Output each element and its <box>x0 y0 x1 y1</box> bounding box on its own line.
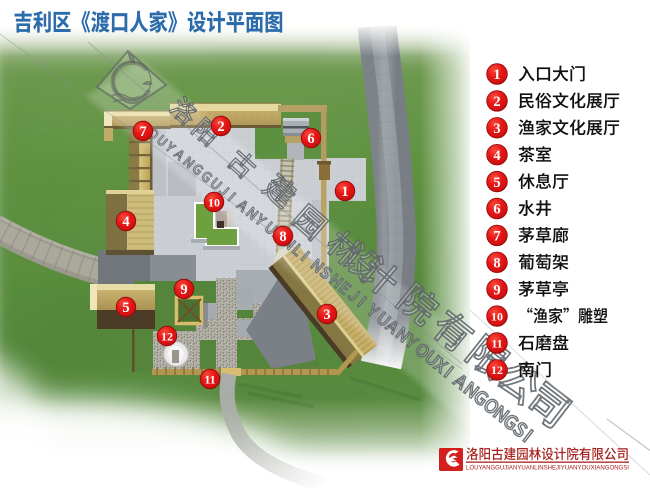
svg-text:2: 2 <box>217 119 224 135</box>
svg-text:7: 7 <box>493 229 500 245</box>
svg-text:5: 5 <box>122 300 129 316</box>
svg-text:10: 10 <box>491 309 503 323</box>
svg-text:3: 3 <box>493 121 500 137</box>
svg-text:7: 7 <box>139 124 146 140</box>
svg-text:1: 1 <box>341 184 348 200</box>
svg-text:6: 6 <box>493 202 500 218</box>
svg-text:4: 4 <box>122 214 129 230</box>
svg-text:8: 8 <box>279 229 286 245</box>
svg-text:9: 9 <box>493 282 500 298</box>
svg-text:10: 10 <box>208 195 220 209</box>
svg-text:8: 8 <box>493 256 500 272</box>
svg-text:6: 6 <box>307 131 314 147</box>
svg-text:3: 3 <box>323 307 330 323</box>
svg-text:12: 12 <box>491 363 503 377</box>
svg-text:2: 2 <box>493 94 500 110</box>
svg-text:11: 11 <box>204 372 215 386</box>
svg-text:9: 9 <box>180 282 187 298</box>
svg-text:1: 1 <box>493 67 500 83</box>
svg-text:12: 12 <box>161 329 173 343</box>
svg-text:5: 5 <box>493 175 500 191</box>
svg-text:4: 4 <box>493 148 500 164</box>
svg-text:LOUYANGGUJIANYUANLINSHEJIYUANY: LOUYANGGUJIANYUANLINSHEJIYUANYOUXIANGONG… <box>466 465 629 472</box>
svg-text:11: 11 <box>491 336 502 350</box>
